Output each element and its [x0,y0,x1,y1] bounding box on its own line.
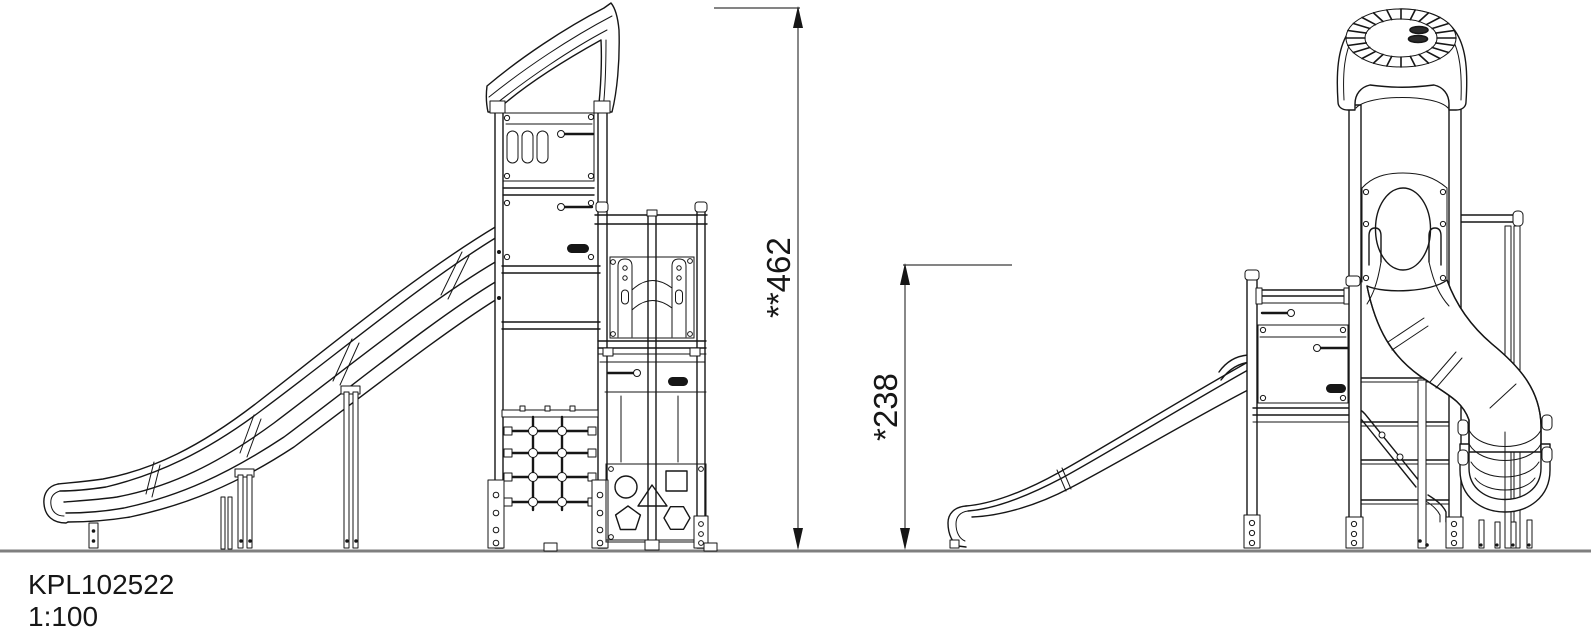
arrowhead-down-icon [793,528,803,550]
platform-height-label: *238 [867,373,904,441]
panel-handle [668,377,688,386]
wave-slide [44,226,497,549]
main-tower [486,3,619,548]
tube-entry-panel [1362,173,1447,282]
round-topper-roof [1337,9,1466,110]
hexagon-cutout [664,507,690,530]
platform-tower [1244,270,1352,548]
tube-entry-opening [1376,188,1431,270]
secondary-tower [544,202,717,551]
platform-panel [1258,325,1350,403]
upper-panel-with-slots [503,113,594,181]
post-anchors-secondary-tower [544,516,717,551]
arrowhead-up-icon [793,6,803,28]
arrowhead-up-icon [900,263,910,285]
playground-elevation-drawing: **462 *238 [0,0,1593,634]
right-elevation-view [948,9,1552,548]
panel-handle [1326,384,1346,393]
climbing-net [502,406,598,510]
roof-vent-slot [1409,36,1428,43]
ladder-rungs [1352,378,1456,504]
pentagon-cutout [616,506,641,530]
technical-drawing-canvas: **462 *238 [0,0,1593,634]
square-cutout [666,471,687,491]
tube-tower [1337,9,1552,548]
handrail [1352,408,1446,522]
roof-vent-slot [1410,27,1428,34]
left-elevation-view [44,3,717,551]
slide-end-curl [44,484,68,523]
curved-roof [486,3,619,112]
arrowhead-down-icon [900,528,910,550]
straight-slide [948,355,1251,548]
drawing-scale: 1:100 [28,601,98,632]
dimension-overall-height: **462 [714,6,803,550]
overall-height-label: **462 [760,237,797,318]
title-block: KPL102522 1:100 [28,569,174,632]
circle-cutout [615,476,637,498]
middle-panel [504,200,593,259]
panel-handle [567,244,589,253]
drawing-code: KPL102522 [28,569,174,600]
post-anchors-left-tower [488,480,608,548]
